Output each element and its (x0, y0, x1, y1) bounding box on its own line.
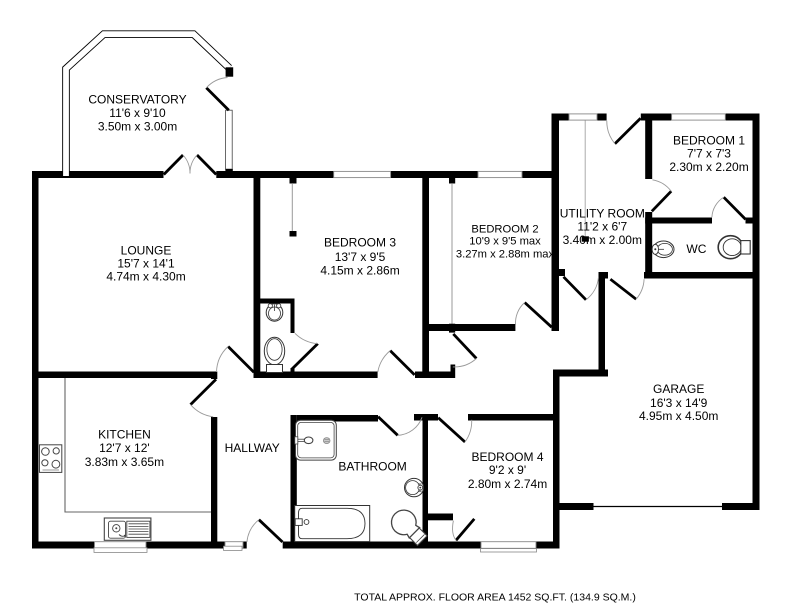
svg-text:12'7 x 12': 12'7 x 12' (99, 441, 150, 455)
svg-text:11'6 x 9'10: 11'6 x 9'10 (109, 106, 166, 120)
svg-text:3.40m x 2.00m: 3.40m x 2.00m (563, 233, 642, 247)
svg-text:BEDROOM 2: BEDROOM 2 (471, 224, 538, 236)
svg-text:KITCHEN: KITCHEN (98, 427, 151, 441)
svg-text:TOTAL APPROX. FLOOR AREA 1452: TOTAL APPROX. FLOOR AREA 1452 SQ.FT. (13… (354, 592, 636, 604)
svg-text:BATHROOM: BATHROOM (338, 460, 406, 474)
svg-text:CONSERVATORY: CONSERVATORY (88, 92, 186, 106)
svg-text:GARAGE: GARAGE (653, 382, 704, 396)
svg-text:LOUNGE: LOUNGE (121, 243, 172, 257)
svg-text:4.74m x 4.30m: 4.74m x 4.30m (106, 270, 185, 284)
svg-text:WC: WC (686, 242, 706, 256)
svg-text:11'2 x 6'7: 11'2 x 6'7 (577, 219, 627, 233)
svg-text:3.83m x 3.65m: 3.83m x 3.65m (85, 455, 164, 469)
svg-text:HALLWAY: HALLWAY (225, 441, 280, 455)
svg-text:BEDROOM 1: BEDROOM 1 (673, 133, 745, 147)
svg-text:16'3 x 14'9: 16'3 x 14'9 (650, 396, 708, 410)
svg-text:3.27m x 2.88m max: 3.27m x 2.88m max (456, 248, 555, 260)
svg-text:15'7 x 14'1: 15'7 x 14'1 (117, 257, 175, 271)
svg-text:4.15m x 2.86m: 4.15m x 2.86m (320, 263, 399, 277)
svg-text:2.80m x 2.74m: 2.80m x 2.74m (468, 477, 547, 491)
svg-text:3.50m x 3.00m: 3.50m x 3.00m (98, 119, 177, 133)
svg-text:BEDROOM 4: BEDROOM 4 (471, 450, 543, 464)
svg-text:7'7 x 7'3: 7'7 x 7'3 (687, 146, 731, 160)
svg-text:9'2 x 9': 9'2 x 9' (489, 463, 526, 477)
svg-text:BEDROOM 3: BEDROOM 3 (324, 236, 396, 250)
svg-text:10'9 x 9'5 max: 10'9 x 9'5 max (469, 236, 541, 248)
svg-text:13'7 x 9'5: 13'7 x 9'5 (335, 250, 386, 264)
svg-text:4.95m x 4.50m: 4.95m x 4.50m (639, 409, 718, 423)
svg-text:2.30m x 2.20m: 2.30m x 2.20m (669, 160, 748, 174)
